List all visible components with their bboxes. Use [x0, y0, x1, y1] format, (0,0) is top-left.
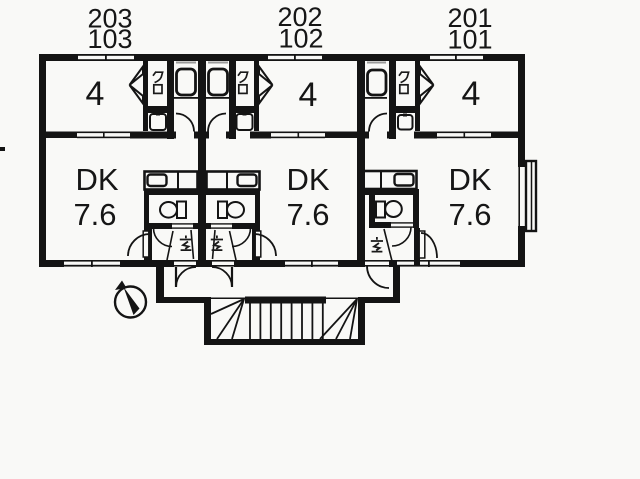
svg-text:7.6: 7.6	[286, 197, 329, 232]
svg-text:4: 4	[86, 75, 105, 113]
svg-text:102: 102	[278, 24, 323, 54]
svg-text:4: 4	[299, 76, 318, 114]
svg-text:7.6: 7.6	[73, 197, 116, 232]
svg-text:DK: DK	[448, 162, 491, 197]
svg-text:DK: DK	[75, 162, 118, 197]
svg-text:DK: DK	[286, 162, 329, 197]
svg-text:7.6: 7.6	[448, 197, 491, 232]
svg-text:4: 4	[462, 75, 481, 113]
svg-text:103: 103	[87, 24, 132, 54]
svg-text:101: 101	[447, 25, 492, 55]
